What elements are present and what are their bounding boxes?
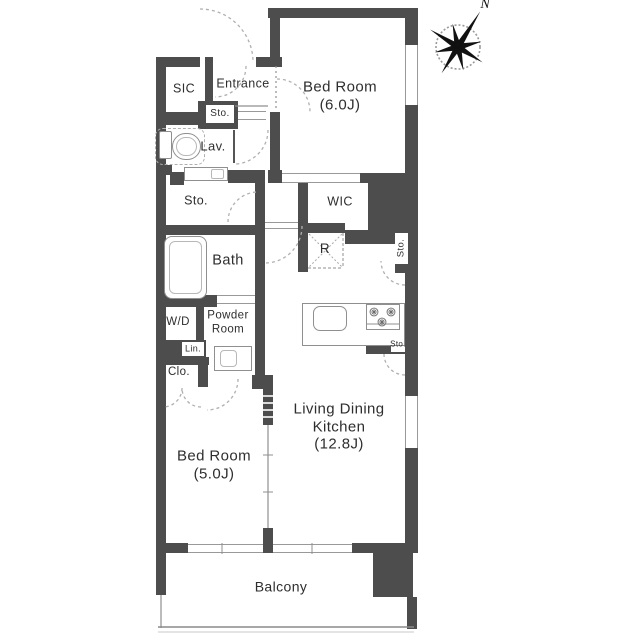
wall-segment-7 <box>268 57 282 67</box>
window-south-b <box>273 544 352 553</box>
label-bedroom5: Bed Room (5.0J) <box>177 447 251 482</box>
wall-segment-29 <box>156 225 265 235</box>
compass-north-label: N <box>479 0 490 12</box>
door-arc-powder <box>207 379 238 410</box>
kitchen-sink <box>313 306 347 331</box>
label-wic: WIC <box>327 195 353 210</box>
label-wd: W/D <box>166 316 190 330</box>
wall-segment-39 <box>298 223 308 272</box>
wall-segment-1 <box>156 543 188 553</box>
wall-segment-18 <box>405 448 418 553</box>
wall-segment-41 <box>345 230 395 244</box>
floor-plan: N SICEntranceSto.Lav.Bed Room (6.0J)Sto.… <box>0 0 640 640</box>
wall-segment-35 <box>252 375 273 389</box>
wall-segment-31 <box>196 307 204 343</box>
wall-segment-34 <box>198 357 208 387</box>
label-sto-entrance: Sto. <box>210 108 229 120</box>
lav-sink <box>211 169 224 179</box>
opening-bedroom6-south <box>282 173 360 183</box>
door-arc-sto-hall <box>228 192 258 222</box>
wall-segment-21 <box>407 597 417 629</box>
wall-segment-3 <box>156 57 200 67</box>
wall-segment-22 <box>205 57 213 107</box>
wall-segment-9 <box>268 170 282 183</box>
window-east-ldk <box>405 396 418 448</box>
wall-segment-19 <box>352 543 405 553</box>
wall-segment-11 <box>405 18 418 45</box>
label-sto-right-2: Sto. <box>390 339 406 348</box>
compass-icon: N <box>430 0 490 73</box>
wall-segment-40 <box>308 223 345 233</box>
door-arc-sto-2 <box>384 354 405 375</box>
door-arc-clo-right <box>182 388 201 407</box>
vanity-basin <box>220 350 237 367</box>
wall-segment-37 <box>263 528 273 553</box>
label-ldk: Living Dining Kitchen (12.8J) <box>293 400 384 453</box>
wall-segment-12 <box>405 105 418 183</box>
label-bedroom6: Bed Room (6.0J) <box>303 78 377 113</box>
stove <box>366 304 400 330</box>
window-east-bedroom6 <box>405 45 418 105</box>
label-clo: Clo. <box>168 366 190 380</box>
label-sic: SIC <box>173 82 195 97</box>
wall-segment-38 <box>298 183 308 223</box>
label-lin: Lin. <box>185 344 201 355</box>
label-sto-right-1: Sto. <box>395 239 406 258</box>
wall-segment-28 <box>255 172 265 389</box>
door-arc-entrance <box>200 9 253 62</box>
toilet-clearance <box>155 128 205 165</box>
window-south-a <box>188 544 263 553</box>
threshold-ldk <box>265 222 298 229</box>
label-entrance: Entrance <box>216 77 269 92</box>
wall-segment-20 <box>373 553 413 597</box>
wall-segment-5 <box>268 8 418 18</box>
label-balcony: Balcony <box>255 579 308 596</box>
label-lav: Lav. <box>200 138 225 153</box>
wall-segment-15 <box>405 273 418 334</box>
label-powder-room: Powder Room <box>207 309 248 336</box>
wall-segment-2 <box>156 553 166 595</box>
wall-segment-26 <box>170 172 184 185</box>
door-arc-lav <box>234 130 268 164</box>
door-bath <box>217 295 255 304</box>
door-arc-ldk <box>265 226 302 263</box>
wall-segment-36 <box>263 389 273 425</box>
door-sto-entrance <box>238 111 266 120</box>
label-sto-hall: Sto. <box>184 194 208 209</box>
bathtub-inner <box>169 241 202 294</box>
wall-segment-13 <box>368 183 418 233</box>
wall-segment-8 <box>270 112 280 173</box>
label-refrigerator: R <box>320 241 330 257</box>
label-bath: Bath <box>212 252 243 269</box>
